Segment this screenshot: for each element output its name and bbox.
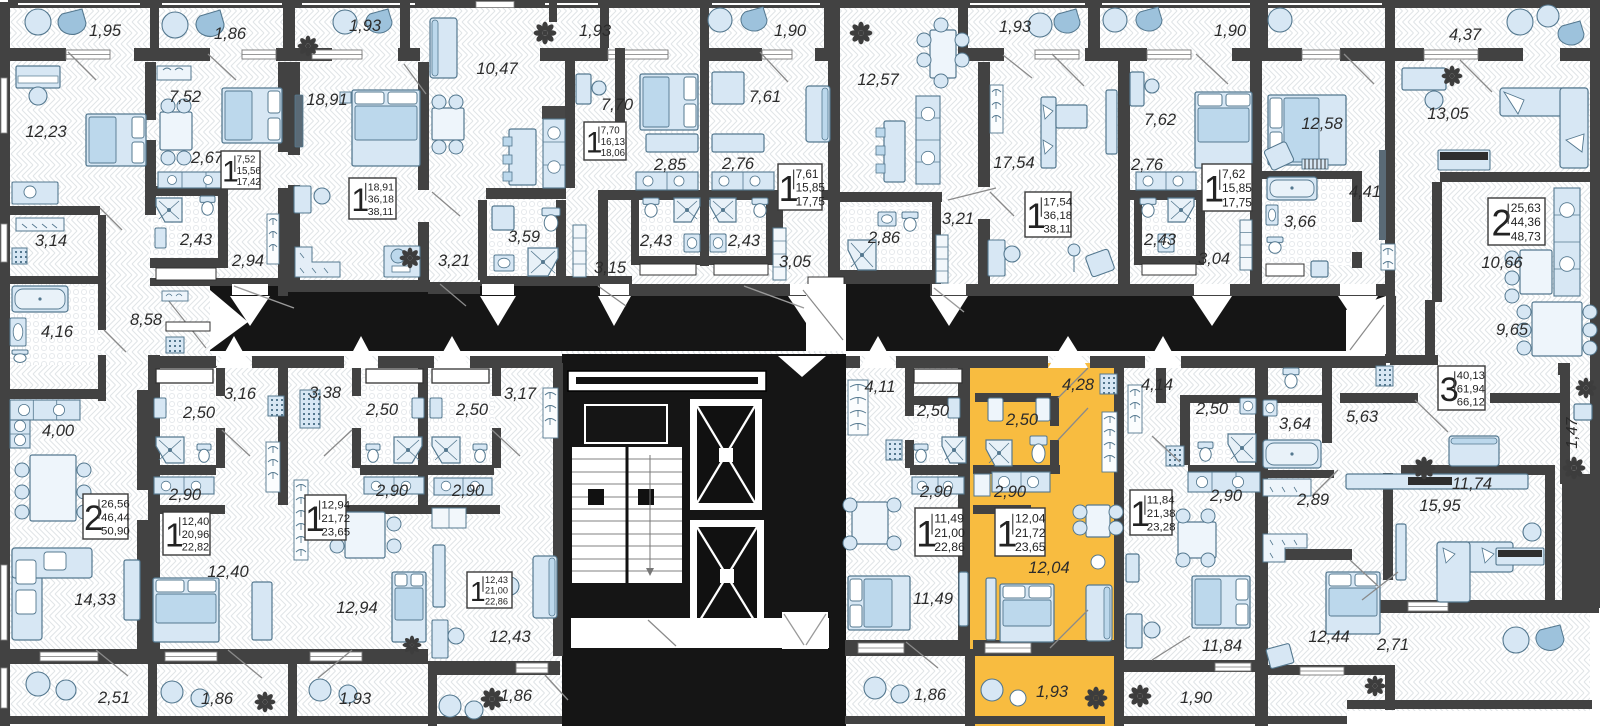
svg-text:1: 1 — [165, 517, 184, 554]
svg-text:36,18: 36,18 — [368, 195, 394, 206]
svg-text:2,50: 2,50 — [1005, 411, 1039, 429]
svg-text:40,13: 40,13 — [1457, 370, 1485, 382]
svg-text:4,11: 4,11 — [865, 378, 896, 396]
svg-text:21,72: 21,72 — [321, 513, 350, 525]
svg-text:10,47: 10,47 — [476, 60, 518, 78]
svg-text:7,70: 7,70 — [601, 96, 634, 114]
svg-text:38,11: 38,11 — [368, 207, 394, 218]
svg-text:21,38: 21,38 — [1147, 508, 1176, 520]
svg-text:25,63: 25,63 — [1511, 201, 1541, 215]
svg-text:26,56: 26,56 — [101, 499, 130, 511]
svg-text:17,54: 17,54 — [993, 154, 1034, 172]
svg-text:1,47: 1,47 — [1564, 416, 1581, 448]
svg-text:10,66: 10,66 — [1481, 254, 1523, 272]
svg-text:4,28: 4,28 — [1062, 376, 1095, 394]
svg-text:12,43: 12,43 — [485, 575, 508, 585]
svg-text:23,28: 23,28 — [1147, 522, 1176, 534]
svg-text:2,50: 2,50 — [1195, 400, 1229, 418]
svg-text:7,61: 7,61 — [749, 88, 781, 106]
svg-text:18,06: 18,06 — [601, 148, 625, 159]
svg-text:12,23: 12,23 — [25, 123, 67, 141]
svg-text:2,67: 2,67 — [190, 149, 224, 167]
svg-text:4,37: 4,37 — [1449, 26, 1482, 44]
svg-text:8,58: 8,58 — [130, 311, 163, 329]
svg-text:3,04: 3,04 — [1198, 250, 1230, 268]
svg-text:23,65: 23,65 — [1015, 540, 1046, 554]
svg-text:1,93: 1,93 — [339, 690, 372, 708]
svg-text:44,36: 44,36 — [1511, 215, 1541, 229]
svg-text:4,41: 4,41 — [1349, 183, 1381, 201]
svg-text:1,90: 1,90 — [774, 22, 807, 40]
svg-text:5,63: 5,63 — [1346, 408, 1379, 426]
svg-text:2,51: 2,51 — [97, 689, 130, 707]
svg-text:12,04: 12,04 — [1015, 511, 1046, 525]
svg-text:3,21: 3,21 — [438, 252, 470, 270]
svg-text:7,70: 7,70 — [601, 125, 620, 136]
svg-text:2,43: 2,43 — [1143, 231, 1177, 249]
svg-text:61,94: 61,94 — [1457, 383, 1485, 395]
svg-text:2,90: 2,90 — [168, 486, 202, 504]
svg-text:2,90: 2,90 — [919, 483, 953, 501]
svg-text:7,61: 7,61 — [796, 168, 819, 181]
svg-text:15,85: 15,85 — [796, 182, 826, 195]
svg-text:1,93: 1,93 — [1036, 683, 1069, 701]
svg-text:1,95: 1,95 — [89, 22, 122, 40]
svg-text:1,90: 1,90 — [1180, 689, 1213, 707]
svg-text:3,14: 3,14 — [35, 232, 67, 250]
svg-text:3,21: 3,21 — [942, 210, 974, 228]
svg-text:15,56: 15,56 — [237, 166, 261, 177]
svg-text:2,86: 2,86 — [867, 229, 901, 247]
svg-text:23,65: 23,65 — [321, 527, 350, 539]
svg-text:1,93: 1,93 — [999, 18, 1032, 36]
svg-text:3,64: 3,64 — [1279, 415, 1311, 433]
svg-text:2,50: 2,50 — [182, 404, 216, 422]
svg-text:17,75: 17,75 — [796, 195, 826, 208]
svg-text:7,52: 7,52 — [169, 88, 201, 106]
svg-text:15,85: 15,85 — [1222, 181, 1252, 195]
svg-text:14,33: 14,33 — [74, 591, 116, 609]
svg-text:2,90: 2,90 — [451, 482, 485, 500]
svg-text:15,95: 15,95 — [1419, 497, 1461, 515]
svg-text:21,72: 21,72 — [1015, 526, 1046, 540]
svg-text:7,62: 7,62 — [1222, 167, 1246, 181]
svg-text:12,44: 12,44 — [1308, 628, 1349, 646]
svg-text:1: 1 — [351, 182, 369, 218]
svg-text:12,57: 12,57 — [857, 71, 899, 89]
svg-text:2,89: 2,89 — [1296, 491, 1329, 509]
svg-text:1,86: 1,86 — [500, 687, 533, 705]
svg-text:4,16: 4,16 — [41, 323, 74, 341]
svg-text:3,15: 3,15 — [594, 259, 627, 277]
svg-text:2,43: 2,43 — [179, 231, 213, 249]
svg-text:2,90: 2,90 — [375, 482, 409, 500]
svg-text:4,14: 4,14 — [1141, 376, 1173, 394]
svg-text:11,49: 11,49 — [913, 590, 953, 608]
svg-text:1,90: 1,90 — [1214, 22, 1247, 40]
svg-text:48,73: 48,73 — [1511, 229, 1541, 243]
svg-text:12,04: 12,04 — [1028, 559, 1069, 577]
svg-text:2,76: 2,76 — [1130, 156, 1164, 174]
svg-text:2,76: 2,76 — [721, 155, 755, 173]
svg-text:2,90: 2,90 — [1209, 487, 1243, 505]
svg-text:2,94: 2,94 — [231, 252, 264, 270]
svg-text:12,43: 12,43 — [489, 628, 531, 646]
svg-text:4,00: 4,00 — [42, 422, 75, 440]
svg-text:1,93: 1,93 — [349, 17, 382, 35]
svg-text:12,40: 12,40 — [207, 563, 249, 581]
svg-text:1,93: 1,93 — [579, 22, 612, 40]
svg-text:1,86: 1,86 — [914, 686, 947, 704]
svg-text:17,75: 17,75 — [1222, 195, 1252, 209]
svg-text:2,50: 2,50 — [916, 402, 950, 420]
svg-text:3,59: 3,59 — [508, 228, 540, 246]
svg-text:50,90: 50,90 — [101, 526, 130, 538]
svg-text:22,86: 22,86 — [934, 540, 965, 554]
svg-text:17,54: 17,54 — [1043, 197, 1072, 209]
svg-text:2,90: 2,90 — [993, 483, 1027, 501]
svg-text:2,50: 2,50 — [365, 401, 399, 419]
svg-text:1,86: 1,86 — [214, 25, 247, 43]
svg-text:2,71: 2,71 — [1376, 636, 1409, 654]
svg-text:13,05: 13,05 — [1427, 105, 1469, 123]
svg-text:21,00: 21,00 — [485, 586, 508, 596]
svg-text:2,50: 2,50 — [455, 401, 489, 419]
svg-text:3,05: 3,05 — [779, 253, 812, 271]
svg-text:9,65: 9,65 — [1496, 321, 1529, 339]
svg-text:3,16: 3,16 — [224, 385, 257, 403]
svg-text:46,44: 46,44 — [101, 512, 130, 524]
svg-text:12,40: 12,40 — [182, 516, 209, 528]
svg-text:2,85: 2,85 — [653, 156, 687, 174]
svg-text:20,96: 20,96 — [182, 529, 209, 541]
svg-text:11,74: 11,74 — [1452, 475, 1492, 493]
svg-text:1,86: 1,86 — [201, 690, 234, 708]
svg-text:7,52: 7,52 — [237, 154, 256, 165]
svg-text:22,82: 22,82 — [182, 542, 209, 554]
svg-text:12,94: 12,94 — [336, 599, 377, 617]
svg-text:22,86: 22,86 — [485, 596, 508, 606]
svg-text:7,62: 7,62 — [1144, 111, 1176, 129]
svg-text:18,91: 18,91 — [368, 182, 394, 193]
svg-text:18,91: 18,91 — [306, 91, 347, 109]
svg-text:3,17: 3,17 — [504, 385, 537, 403]
svg-text:2,43: 2,43 — [727, 232, 761, 250]
svg-text:16,13: 16,13 — [601, 137, 625, 148]
svg-text:11,84: 11,84 — [1147, 495, 1175, 507]
svg-text:12,58: 12,58 — [1301, 115, 1343, 133]
svg-text:66,12: 66,12 — [1457, 397, 1485, 409]
svg-text:11,84: 11,84 — [1202, 637, 1242, 655]
svg-text:3,66: 3,66 — [1284, 213, 1317, 231]
svg-text:3,38: 3,38 — [309, 384, 342, 402]
svg-text:36,18: 36,18 — [1043, 210, 1072, 222]
svg-text:17,42: 17,42 — [237, 177, 261, 188]
svg-text:11,49: 11,49 — [934, 511, 964, 525]
svg-text:2,43: 2,43 — [639, 232, 673, 250]
svg-text:21,00: 21,00 — [934, 526, 965, 540]
svg-text:38,11: 38,11 — [1043, 224, 1071, 236]
svg-text:12,94: 12,94 — [321, 500, 350, 512]
